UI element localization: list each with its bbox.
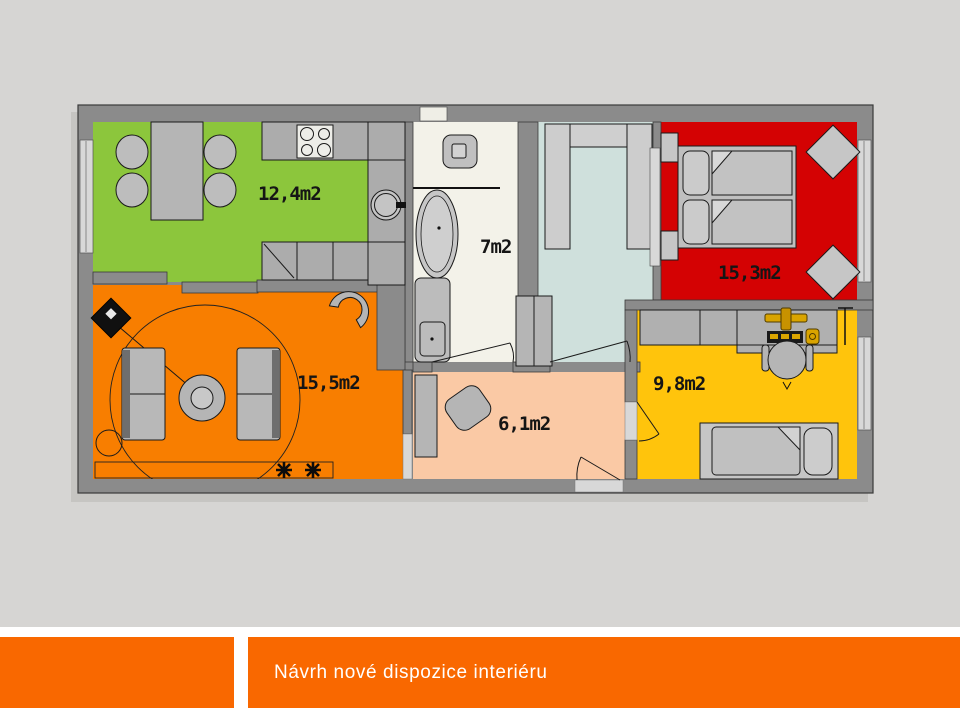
chair-armrest xyxy=(806,345,813,371)
pillow xyxy=(683,200,709,244)
banner-title-block: Návrh nové dispozice interiéru xyxy=(248,637,960,708)
chair-icon xyxy=(116,135,148,169)
plant-icon xyxy=(305,462,321,478)
window-study-icon xyxy=(858,337,871,430)
area-label-living: 15,5m2 xyxy=(297,372,360,394)
wall-study-left-lower xyxy=(625,440,637,479)
hall-cabinet xyxy=(534,296,552,366)
hall-cabinet xyxy=(516,296,534,366)
chair-icon xyxy=(116,173,148,207)
kitchen-tap-icon xyxy=(396,202,406,208)
window-bathroom-icon xyxy=(420,107,447,121)
opening-entrance-door xyxy=(575,480,623,492)
dining-table xyxy=(151,122,203,220)
area-label-hallway: 6,1m2 xyxy=(498,413,550,435)
wardrobe-right xyxy=(627,124,652,249)
wall-column xyxy=(377,285,405,370)
bedroom-door-strip xyxy=(650,148,660,266)
slide-title: Návrh nové dispozice interiéru xyxy=(248,662,548,684)
window-kitchen-icon xyxy=(80,140,93,253)
opening-living-hallway xyxy=(403,434,412,479)
opening-study-door xyxy=(625,402,637,440)
wall-kitchen-bath xyxy=(405,122,413,362)
wall-bedroom-study xyxy=(625,300,873,310)
wall-bath-hall xyxy=(518,122,538,297)
nightstand xyxy=(661,231,678,260)
shoe-cabinet xyxy=(415,375,437,457)
plant-icon xyxy=(276,462,292,478)
kitchen-counter-bottom xyxy=(262,242,368,280)
wall-hallway-top-1 xyxy=(413,362,432,372)
floor-plan: 12,4m2 15,5m2 7m2 15,3m2 9,8m2 6,1m2 xyxy=(0,0,960,627)
pillow xyxy=(683,151,709,195)
wall-study-left-upper xyxy=(625,310,637,402)
chair-icon xyxy=(204,135,236,169)
wardrobe-left xyxy=(545,124,570,249)
chair-icon xyxy=(204,173,236,207)
area-label-study: 9,8m2 xyxy=(653,373,705,395)
nightstand xyxy=(661,133,678,162)
wall-kitchen-living-b xyxy=(182,282,258,293)
office-chair-icon xyxy=(768,341,806,379)
sofa-left-backrest xyxy=(123,350,130,438)
wall-kitchen-living-a xyxy=(93,272,167,284)
banner-accent-block xyxy=(0,637,234,708)
mouse-icon xyxy=(806,329,819,344)
study-bed-pillow xyxy=(804,428,832,475)
hall-shelf xyxy=(570,124,627,147)
wall-living-hallway xyxy=(403,370,412,434)
area-label-bathroom: 7m2 xyxy=(480,236,511,258)
area-label-kitchen: 12,4m2 xyxy=(258,183,321,205)
area-label-bedroom: 15,3m2 xyxy=(718,262,781,284)
sofa-right-backrest xyxy=(272,350,279,438)
window-bedroom-icon xyxy=(858,140,871,282)
